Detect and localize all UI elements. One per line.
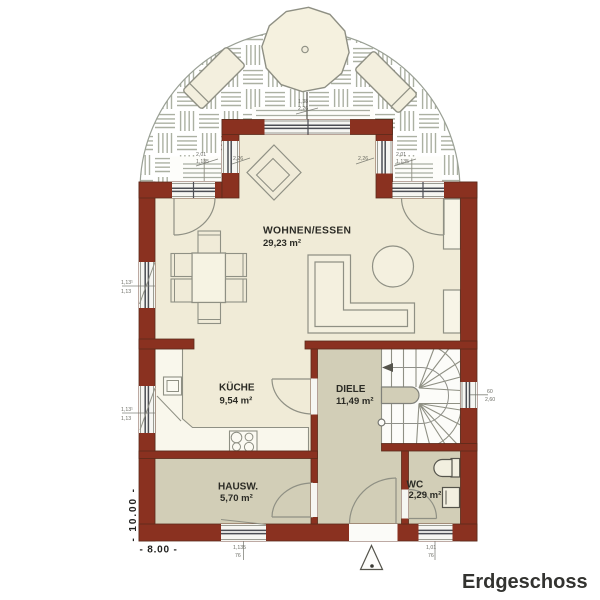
svg-text:DIELE: DIELE — [336, 384, 366, 395]
svg-text:1,38: 1,38 — [298, 99, 308, 105]
svg-text:KÜCHE: KÜCHE — [219, 381, 255, 394]
svg-text:1,13: 1,13 — [121, 416, 131, 422]
svg-text:2,01: 2,01 — [396, 152, 406, 158]
svg-text:2,60: 2,60 — [485, 397, 495, 403]
svg-text:1,13¹: 1,13¹ — [121, 280, 133, 286]
svg-text:- 8.00 -: - 8.00 - — [140, 545, 178, 556]
svg-text:60: 60 — [487, 389, 493, 395]
svg-text:2,26: 2,26 — [358, 156, 368, 162]
svg-text:29,23 m²: 29,23 m² — [263, 238, 301, 249]
svg-text:1,13: 1,13 — [121, 289, 131, 295]
svg-text:WC: WC — [407, 480, 424, 491]
svg-text:2,01: 2,01 — [196, 152, 206, 158]
svg-text:76: 76 — [428, 553, 434, 559]
svg-text:- 10.00 -: - 10.00 - — [128, 487, 139, 541]
svg-text:76: 76 — [235, 553, 241, 559]
svg-text:9,54 m²: 9,54 m² — [220, 396, 253, 407]
svg-text:HAUSW.: HAUSW. — [218, 482, 258, 493]
svg-text:5,70 m²: 5,70 m² — [220, 493, 253, 504]
svg-text:Erdgeschoss: Erdgeschoss — [462, 571, 588, 593]
svg-text:1,13¹: 1,13¹ — [121, 407, 133, 413]
svg-text:1,135: 1,135 — [233, 545, 246, 551]
svg-text:11,49 m²: 11,49 m² — [336, 396, 374, 407]
svg-text:2,29 m²: 2,29 m² — [409, 490, 442, 501]
svg-text:1,01: 1,01 — [426, 545, 436, 551]
svg-text:WOHNEN/ESSEN: WOHNEN/ESSEN — [263, 226, 351, 237]
